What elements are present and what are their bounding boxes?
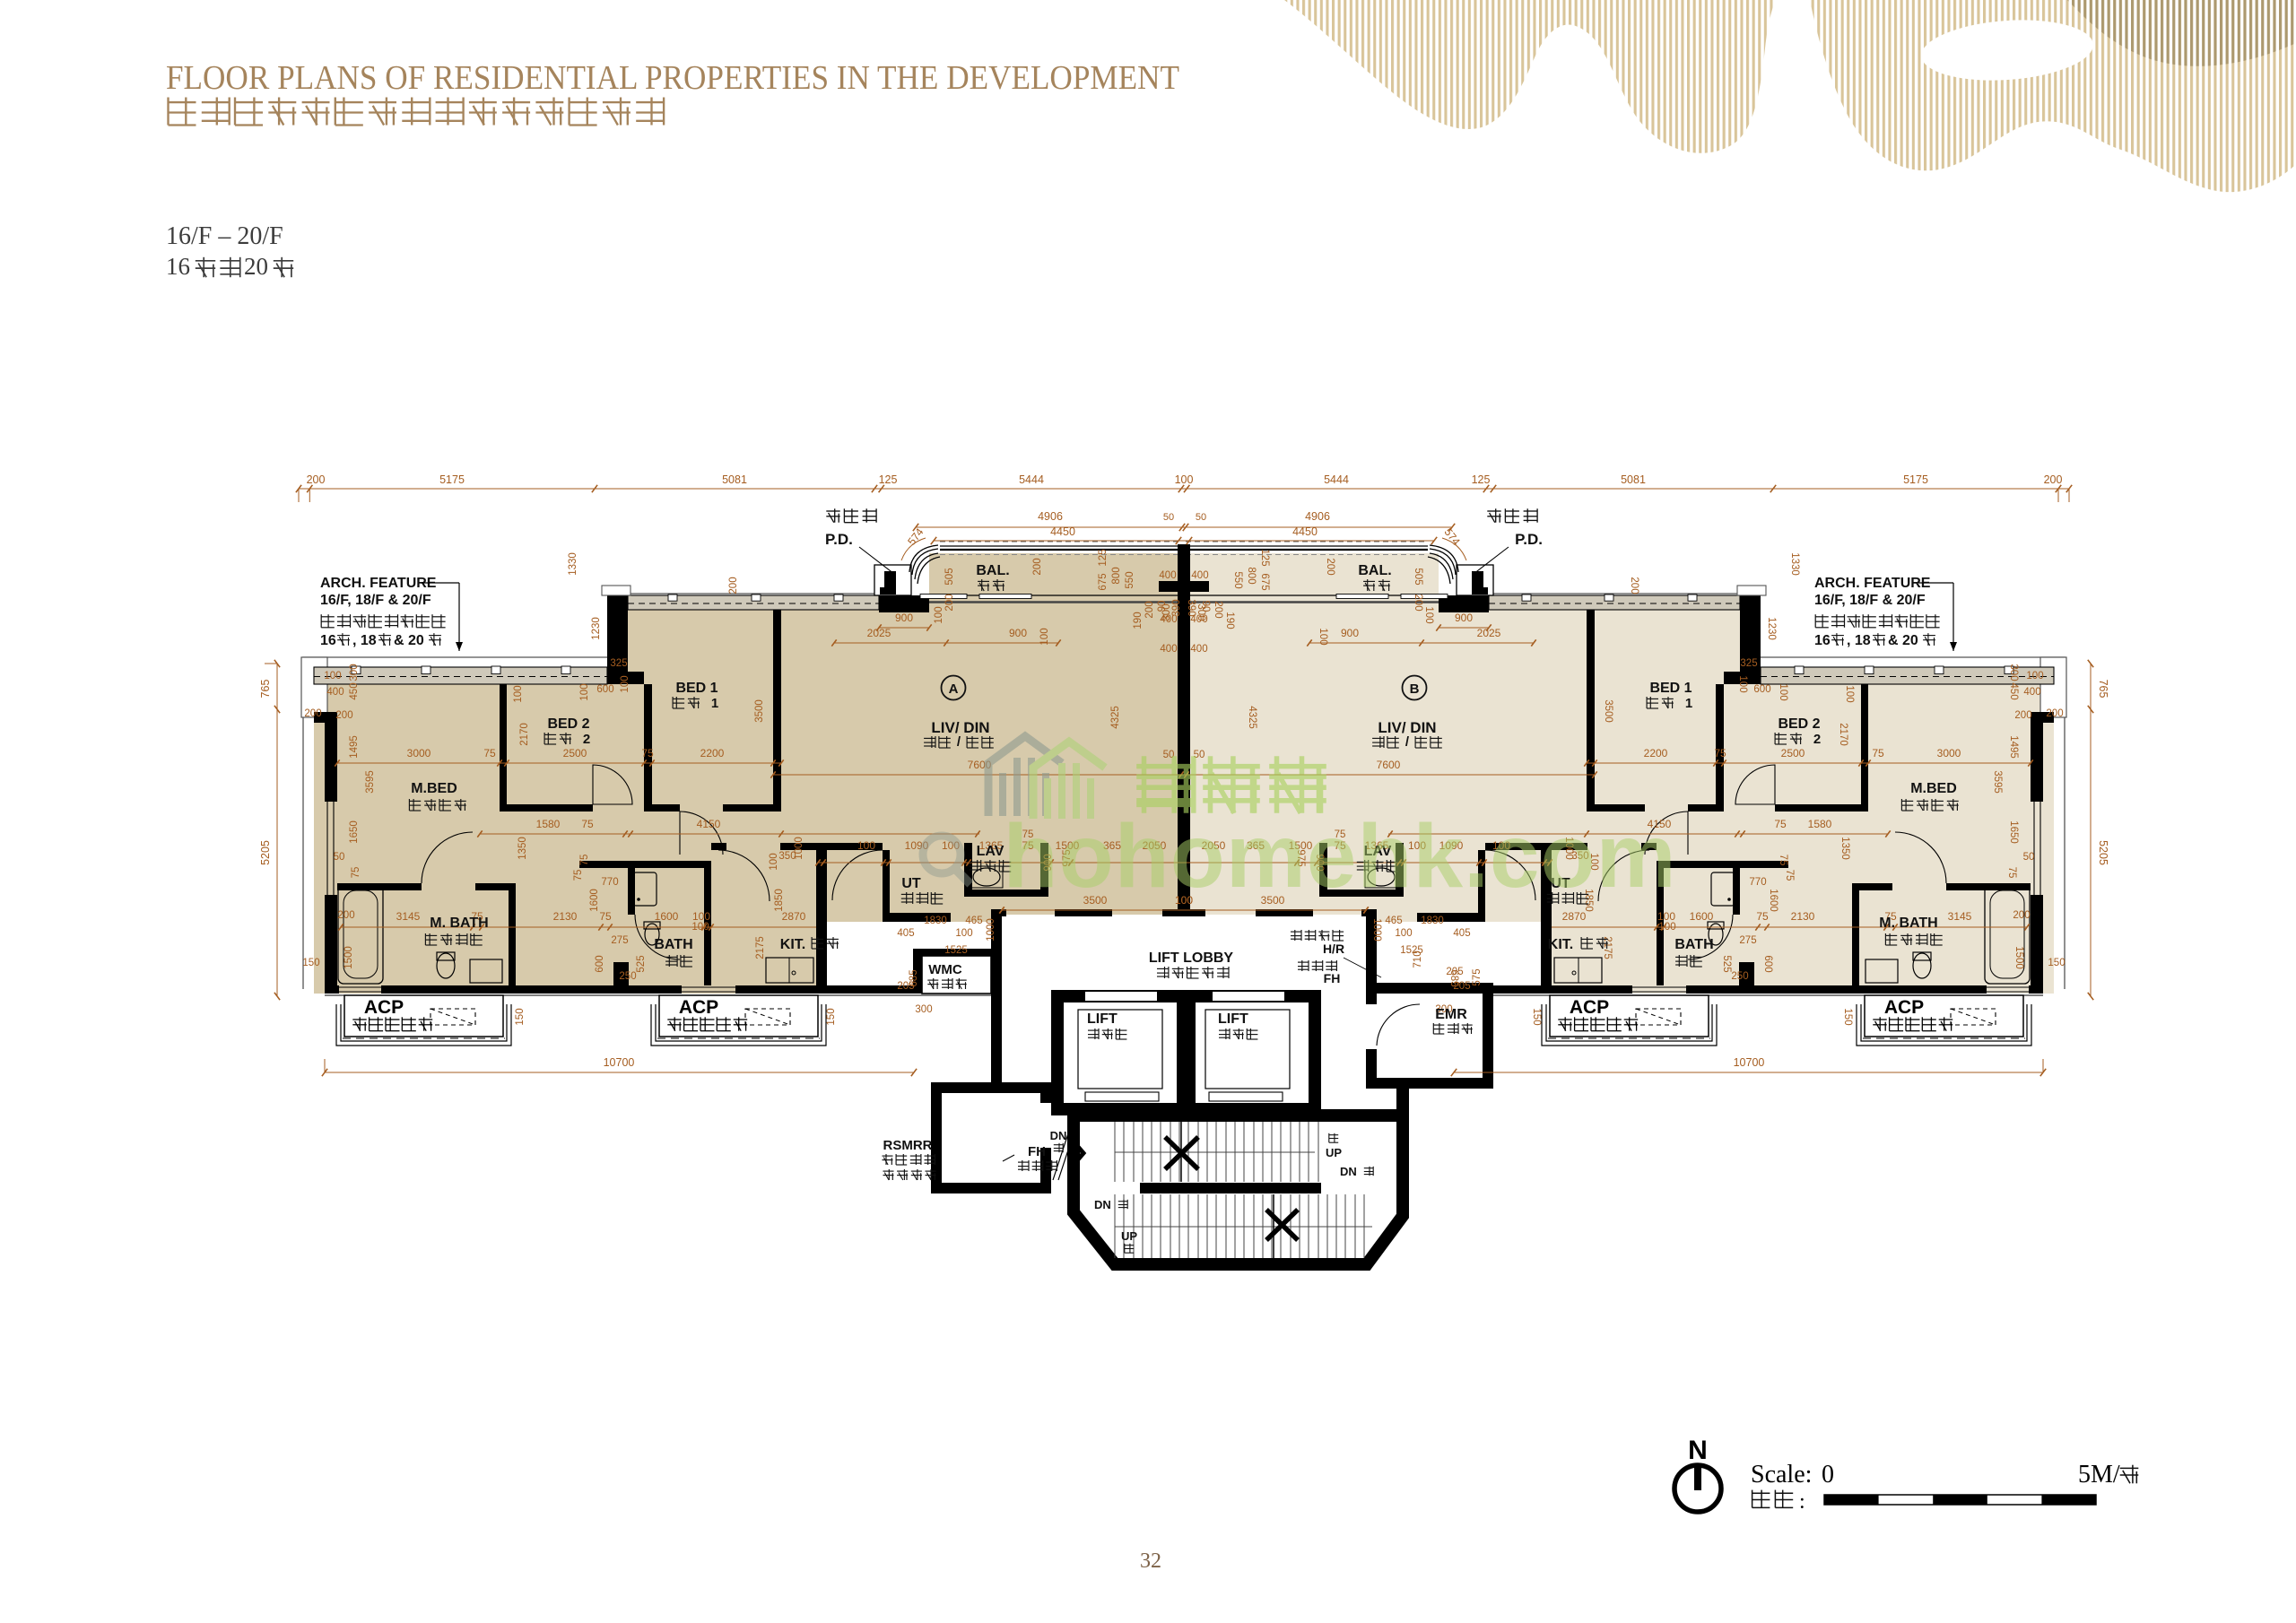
- svg-text:1495: 1495: [349, 735, 360, 759]
- svg-text:100: 100: [1658, 922, 1675, 933]
- svg-text:770: 770: [1749, 877, 1766, 888]
- svg-text:100: 100: [1175, 473, 1194, 486]
- svg-text:900: 900: [1341, 627, 1359, 639]
- svg-text:100: 100: [1039, 628, 1050, 645]
- svg-text:16/F, 18/F & 20/F: 16/F, 18/F & 20/F: [320, 593, 431, 608]
- svg-text:600: 600: [595, 955, 605, 972]
- svg-text:200: 200: [1032, 558, 1043, 575]
- svg-text:100: 100: [1318, 628, 1328, 645]
- svg-text:400: 400: [1190, 614, 1207, 625]
- svg-text:3595: 3595: [365, 770, 376, 794]
- svg-text:75: 75: [483, 747, 496, 759]
- svg-text:1600: 1600: [1690, 910, 1714, 923]
- svg-text:100: 100: [1423, 606, 1434, 623]
- svg-text:4906: 4906: [1038, 510, 1063, 523]
- svg-text:2175: 2175: [755, 936, 766, 959]
- svg-text:100: 100: [955, 928, 972, 939]
- svg-text:250: 250: [619, 971, 636, 982]
- svg-text:325: 325: [610, 658, 627, 669]
- svg-text:1: 1: [711, 696, 718, 711]
- svg-text:5M/: 5M/: [2078, 1461, 2120, 1488]
- svg-text:75: 75: [1774, 818, 1787, 830]
- svg-text:200: 200: [1413, 594, 1423, 611]
- svg-text:P.D.: P.D.: [1515, 531, 1543, 548]
- svg-text:ACP: ACP: [1570, 997, 1609, 1018]
- svg-text:16/F, 18/F & 20/F: 16/F, 18/F & 20/F: [1814, 593, 1926, 608]
- svg-text:465: 465: [965, 916, 982, 926]
- svg-text:, 18: , 18: [1847, 633, 1871, 648]
- svg-text:1580: 1580: [536, 818, 561, 830]
- svg-text:675: 675: [1259, 573, 1270, 590]
- svg-text:50: 50: [2023, 852, 2035, 863]
- svg-text:FH: FH: [1324, 971, 1341, 985]
- svg-text:BED 2: BED 2: [547, 716, 589, 732]
- svg-text:800: 800: [1111, 567, 1122, 584]
- svg-text:100: 100: [857, 839, 875, 852]
- svg-text:5205: 5205: [2097, 840, 2109, 865]
- svg-text:600: 600: [1762, 955, 1773, 972]
- svg-text:P.D.: P.D.: [825, 531, 853, 548]
- svg-text:100: 100: [513, 685, 524, 702]
- svg-text:200: 200: [728, 577, 739, 594]
- svg-text::: :: [1799, 1490, 1805, 1514]
- svg-text:2870: 2870: [782, 910, 806, 923]
- svg-text:150: 150: [515, 1008, 526, 1025]
- svg-text:200: 200: [307, 473, 326, 486]
- svg-text:75: 75: [581, 818, 594, 830]
- svg-text:LAV: LAV: [977, 844, 1004, 859]
- svg-text:3145: 3145: [1948, 910, 1972, 923]
- svg-text:125: 125: [1098, 549, 1109, 566]
- svg-text:75: 75: [573, 870, 584, 881]
- svg-text:DN: DN: [1050, 1129, 1067, 1142]
- svg-text:7600: 7600: [1377, 759, 1401, 771]
- svg-text:405: 405: [897, 928, 914, 939]
- svg-text:525: 525: [1721, 955, 1732, 972]
- svg-text:300: 300: [2008, 664, 2019, 681]
- svg-text:1350: 1350: [1839, 837, 1850, 860]
- svg-text:250: 250: [1731, 971, 1748, 982]
- svg-text:75: 75: [1778, 855, 1788, 866]
- svg-text:16: 16: [1814, 633, 1831, 648]
- svg-text:UT: UT: [901, 876, 921, 891]
- svg-text:4906: 4906: [1305, 510, 1330, 523]
- svg-text:100: 100: [324, 671, 341, 681]
- svg-text:450: 450: [2008, 682, 2019, 699]
- svg-text:200: 200: [2013, 910, 2030, 921]
- svg-text:FH: FH: [1028, 1144, 1046, 1159]
- svg-text:LIFT LOBBY: LIFT LOBBY: [1149, 950, 1234, 966]
- svg-text:32: 32: [1140, 1549, 1161, 1573]
- svg-text:UP: UP: [1326, 1146, 1342, 1159]
- svg-text:50: 50: [334, 852, 345, 863]
- svg-text:200: 200: [2044, 473, 2063, 486]
- svg-text:300: 300: [915, 1004, 932, 1015]
- svg-text:KIT.: KIT.: [780, 937, 805, 952]
- svg-text:DN: DN: [1340, 1165, 1357, 1178]
- svg-text:M. BATH: M. BATH: [1879, 916, 1937, 931]
- svg-text:150: 150: [2048, 958, 2065, 968]
- svg-text:400: 400: [1191, 570, 1208, 581]
- svg-text:4325: 4325: [1110, 706, 1121, 729]
- svg-text:100: 100: [579, 683, 590, 700]
- svg-text:100: 100: [769, 853, 779, 870]
- svg-text:200: 200: [1629, 577, 1639, 594]
- svg-text:1650: 1650: [2008, 820, 2019, 844]
- svg-text:350: 350: [778, 851, 796, 862]
- svg-text:75: 75: [1714, 747, 1726, 759]
- svg-text:1230: 1230: [1766, 617, 1777, 640]
- svg-text:EMR: EMR: [1435, 1007, 1467, 1022]
- svg-text:1500: 1500: [2013, 946, 2024, 969]
- svg-text:M. BATH: M. BATH: [430, 916, 488, 931]
- svg-text:ACP: ACP: [364, 997, 404, 1018]
- svg-text:150: 150: [1842, 1008, 1853, 1025]
- svg-text:770: 770: [601, 877, 618, 888]
- svg-text:200: 200: [335, 710, 352, 721]
- svg-text:16: 16: [320, 633, 336, 648]
- svg-text:FLOOR PLANS OF RESIDENTIAL PRO: FLOOR PLANS OF RESIDENTIAL PROPERTIES IN…: [166, 59, 1179, 97]
- svg-text:3145: 3145: [396, 910, 421, 923]
- svg-text:190: 190: [1133, 612, 1144, 629]
- svg-text:H/R: H/R: [1323, 942, 1344, 956]
- svg-text:150: 150: [1531, 1008, 1542, 1025]
- svg-text:200: 200: [1325, 558, 1335, 575]
- svg-text:465: 465: [1385, 916, 1402, 926]
- svg-text:100: 100: [692, 910, 710, 923]
- svg-text:1830: 1830: [1421, 916, 1444, 926]
- svg-text:16: 16: [166, 253, 190, 280]
- svg-text:575: 575: [1472, 968, 1483, 985]
- svg-text:200: 200: [1144, 601, 1155, 618]
- svg-text:600: 600: [1753, 684, 1770, 695]
- svg-text:505: 505: [1413, 568, 1423, 585]
- svg-text:0: 0: [1822, 1461, 1834, 1488]
- svg-text:1: 1: [1685, 696, 1692, 711]
- svg-text:2: 2: [1813, 732, 1821, 747]
- svg-text:3500: 3500: [754, 699, 765, 723]
- svg-text:710: 710: [1413, 950, 1423, 968]
- svg-text:5081: 5081: [722, 473, 747, 486]
- svg-text:75: 75: [2006, 867, 2017, 879]
- svg-text:3000: 3000: [1937, 747, 1961, 759]
- svg-text:300: 300: [349, 664, 360, 681]
- svg-text:75: 75: [1756, 910, 1769, 923]
- svg-text:50: 50: [1196, 512, 1206, 523]
- svg-text:205: 205: [897, 981, 914, 992]
- svg-text:hohomehk.com: hohomehk.com: [1004, 806, 1677, 907]
- svg-text:ACP: ACP: [679, 997, 718, 1018]
- svg-text:A: A: [949, 681, 959, 697]
- svg-text:BED 1: BED 1: [1649, 681, 1692, 696]
- svg-text:574: 574: [905, 525, 926, 548]
- svg-text:5444: 5444: [1324, 473, 1349, 486]
- svg-text:275: 275: [611, 935, 628, 946]
- svg-text:5444: 5444: [1019, 473, 1044, 486]
- svg-text:ARCH. FEATURE: ARCH. FEATURE: [1814, 576, 1931, 591]
- svg-text:1600: 1600: [589, 889, 600, 912]
- svg-text:600: 600: [596, 684, 613, 695]
- svg-text:ARCH. FEATURE: ARCH. FEATURE: [320, 576, 437, 591]
- svg-text:100: 100: [1657, 910, 1675, 923]
- svg-text:900: 900: [1009, 627, 1027, 639]
- svg-text:200: 200: [2046, 708, 2063, 719]
- svg-text:BAL.: BAL.: [1358, 563, 1391, 578]
- svg-text:400: 400: [1160, 644, 1177, 655]
- svg-text:200: 200: [1213, 601, 1223, 618]
- svg-text:& 20: & 20: [1888, 633, 1918, 648]
- svg-text:3595: 3595: [1992, 770, 2003, 794]
- svg-text:100: 100: [620, 675, 631, 692]
- svg-text:BED 1: BED 1: [675, 681, 717, 696]
- svg-text:N: N: [1688, 1436, 1708, 1465]
- svg-text:2500: 2500: [563, 747, 587, 759]
- svg-text:5175: 5175: [1903, 473, 1928, 486]
- svg-text:, 18: , 18: [352, 633, 377, 648]
- svg-text:BATH: BATH: [654, 937, 692, 952]
- svg-text:2130: 2130: [1791, 910, 1815, 923]
- svg-text:505: 505: [944, 568, 955, 585]
- svg-text:LIFT: LIFT: [1087, 1011, 1118, 1027]
- svg-text:200: 200: [337, 910, 354, 921]
- svg-text:190: 190: [1224, 612, 1235, 629]
- svg-text:10700: 10700: [604, 1056, 635, 1069]
- svg-text:4450: 4450: [1292, 525, 1318, 538]
- svg-text:75: 75: [1784, 870, 1795, 881]
- svg-text:125: 125: [1472, 473, 1491, 486]
- svg-text:5081: 5081: [1621, 473, 1646, 486]
- svg-text:765: 765: [259, 680, 272, 699]
- svg-text:400: 400: [1190, 644, 1207, 655]
- svg-text:200: 200: [2014, 710, 2031, 721]
- svg-text:100: 100: [1844, 685, 1855, 702]
- svg-text:125: 125: [1259, 549, 1270, 566]
- svg-text:UP: UP: [1121, 1229, 1137, 1243]
- svg-text:ACP: ACP: [1884, 997, 1924, 1018]
- svg-text:1330: 1330: [568, 552, 578, 576]
- svg-text:574: 574: [1441, 525, 1463, 548]
- svg-text:75: 75: [641, 747, 654, 759]
- svg-text:BATH: BATH: [1674, 937, 1713, 952]
- svg-text:400: 400: [1159, 570, 1176, 581]
- svg-text:RSMRR: RSMRR: [883, 1138, 933, 1153]
- svg-text:100: 100: [2026, 671, 2043, 681]
- svg-text:& 20: & 20: [394, 633, 424, 648]
- svg-text:200: 200: [944, 594, 955, 611]
- svg-text:4450: 4450: [1050, 525, 1075, 538]
- svg-text:75: 75: [599, 910, 612, 923]
- svg-text:1650: 1650: [349, 820, 360, 844]
- svg-text:100: 100: [691, 922, 709, 933]
- svg-text:400: 400: [326, 687, 344, 698]
- svg-text:M.BED: M.BED: [1910, 781, 1957, 796]
- svg-text:800: 800: [1246, 567, 1257, 584]
- svg-text:5205: 5205: [259, 840, 272, 865]
- svg-text:1000: 1000: [986, 918, 996, 942]
- svg-text:2200: 2200: [700, 747, 725, 759]
- svg-text:275: 275: [1739, 935, 1756, 946]
- svg-text:100: 100: [1395, 928, 1412, 939]
- svg-text:5175: 5175: [439, 473, 465, 486]
- svg-text:75: 75: [579, 855, 590, 866]
- svg-text:125: 125: [879, 473, 898, 486]
- svg-text:150: 150: [302, 958, 319, 968]
- svg-text:WMC: WMC: [928, 962, 962, 977]
- svg-text:765: 765: [2097, 680, 2109, 699]
- svg-text:1525: 1525: [944, 945, 968, 956]
- svg-text:KIT.: KIT.: [1548, 937, 1573, 952]
- svg-text:1600: 1600: [655, 910, 679, 923]
- svg-text:LIFT: LIFT: [1218, 1011, 1248, 1027]
- svg-text:205: 205: [1453, 981, 1470, 992]
- svg-text:450: 450: [349, 682, 360, 699]
- svg-text:2: 2: [583, 732, 590, 747]
- svg-text:2130: 2130: [553, 910, 578, 923]
- svg-text:3000: 3000: [407, 747, 431, 759]
- svg-text:405: 405: [1453, 928, 1470, 939]
- svg-text:M.BED: M.BED: [411, 781, 457, 796]
- svg-text:4150: 4150: [697, 818, 721, 830]
- svg-text:75: 75: [1872, 747, 1884, 759]
- svg-text:1580: 1580: [1808, 818, 1832, 830]
- svg-text:400: 400: [1160, 614, 1177, 625]
- svg-text:1850: 1850: [774, 889, 785, 912]
- svg-text:1830: 1830: [924, 916, 947, 926]
- svg-text:1350: 1350: [517, 837, 528, 860]
- svg-text:2870: 2870: [1562, 910, 1587, 923]
- svg-text:75: 75: [351, 867, 361, 879]
- svg-text:325: 325: [1740, 658, 1757, 669]
- svg-text:550: 550: [1125, 571, 1135, 588]
- svg-text:10700: 10700: [1734, 1056, 1765, 1069]
- svg-text:Scale:: Scale:: [1751, 1461, 1812, 1488]
- svg-text:400: 400: [2023, 687, 2040, 698]
- svg-text:4325: 4325: [1247, 706, 1257, 729]
- svg-text:1500: 1500: [344, 946, 354, 969]
- svg-text:2200: 2200: [1644, 747, 1668, 759]
- svg-text:BED 2: BED 2: [1778, 716, 1820, 732]
- svg-text:1495: 1495: [2008, 735, 2019, 759]
- svg-text:DN: DN: [1094, 1198, 1111, 1211]
- svg-text:16/F – 20/F: 16/F – 20/F: [166, 222, 283, 250]
- svg-text:100: 100: [934, 606, 944, 623]
- svg-text:1600: 1600: [1768, 889, 1779, 912]
- svg-text:205: 205: [1446, 967, 1463, 977]
- svg-text:550: 550: [1232, 571, 1243, 588]
- svg-text:900: 900: [895, 612, 913, 624]
- svg-text:2170: 2170: [1838, 723, 1848, 746]
- svg-text:100: 100: [1737, 675, 1748, 692]
- svg-text:1000: 1000: [1371, 918, 1382, 942]
- svg-text:B: B: [1410, 681, 1420, 697]
- svg-text:2170: 2170: [519, 723, 530, 746]
- svg-text:900: 900: [1455, 612, 1473, 624]
- svg-text:150: 150: [826, 1008, 837, 1025]
- svg-text:525: 525: [636, 955, 647, 972]
- svg-text:1230: 1230: [591, 617, 602, 640]
- svg-text:100: 100: [1778, 683, 1788, 700]
- svg-text:200: 200: [304, 708, 321, 719]
- svg-text:3500: 3500: [1603, 699, 1613, 723]
- svg-text:1330: 1330: [1789, 552, 1800, 576]
- svg-text:2500: 2500: [1781, 747, 1805, 759]
- svg-text:20: 20: [244, 253, 268, 280]
- svg-text:50: 50: [1163, 512, 1174, 523]
- svg-text:BAL.: BAL.: [976, 563, 1009, 578]
- svg-text:675: 675: [1098, 573, 1109, 590]
